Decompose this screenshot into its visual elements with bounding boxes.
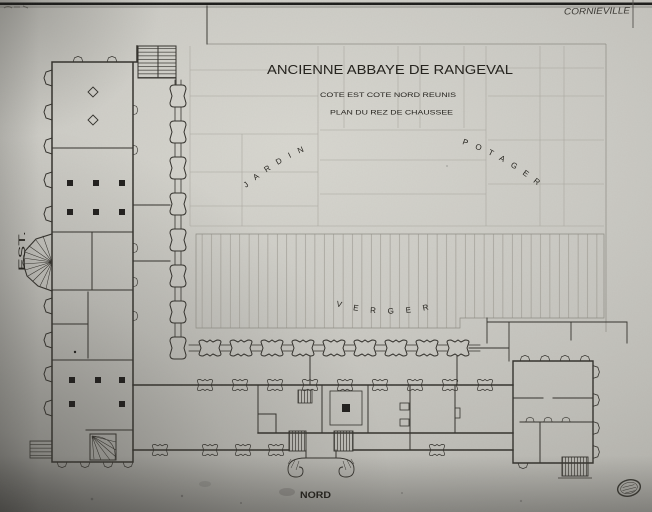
- paper-grain: [0, 0, 652, 512]
- archive-photo: ANCIENNE ABBAYE DE RANGEVAL COTE EST COT…: [0, 0, 652, 512]
- plan-drawing: ANCIENNE ABBAYE DE RANGEVAL COTE EST COT…: [0, 0, 652, 512]
